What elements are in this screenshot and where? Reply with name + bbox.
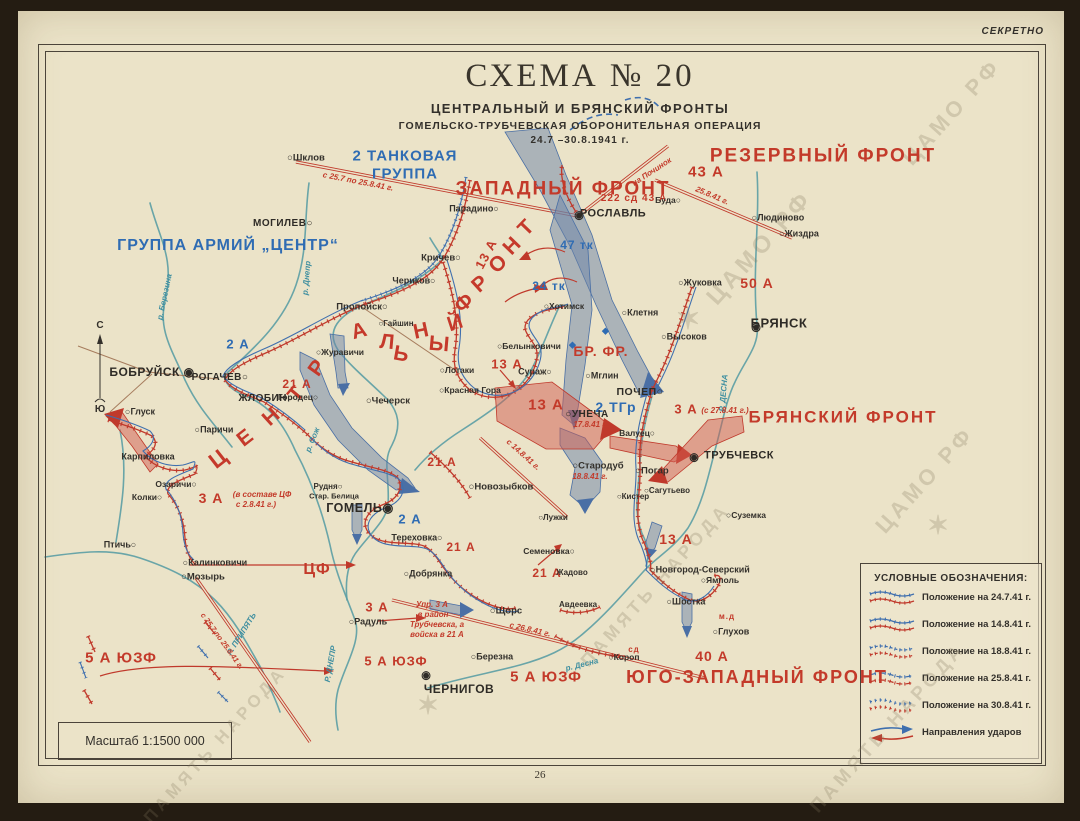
unit-label-red: 5 А ЮЗФ — [85, 651, 157, 666]
place-label: МОГИЛЕВ○ — [253, 219, 313, 229]
place-label: ○Лужки — [538, 514, 568, 522]
place-label: ○Глухов — [713, 628, 750, 637]
unit-label-red: 50 А — [740, 276, 774, 290]
legend-item: Положение на 24.7.41 г. — [861, 584, 1041, 611]
place-label: ○Чечерск — [366, 396, 410, 406]
place-label: РОСЛАВЛЬ — [580, 209, 646, 220]
map-title: СХЕМА № 20 — [330, 58, 830, 95]
city-marker-icon: ◉ — [689, 453, 699, 464]
place-label: ○Гайшин — [378, 320, 413, 328]
date-note: войска в 21 А — [410, 631, 464, 639]
place-label: ○Мозырь — [181, 572, 225, 582]
date-note: с 2.8.41 г.) — [236, 501, 276, 509]
place-label: ○Щорс — [490, 606, 522, 616]
date-note: Упр. 3 А — [416, 601, 448, 609]
place-label: Рудня○ — [314, 483, 343, 491]
compass-south-label: Ю — [95, 405, 105, 415]
date-note: (с 27.8.41 г.) — [701, 407, 748, 415]
position-line-icon — [868, 615, 916, 635]
watermark: ✶ — [675, 305, 704, 335]
date-note: 17.8.41 г. — [573, 421, 608, 429]
place-label: Озаричи○ — [155, 480, 196, 489]
place-label: ПОЧЕП○ — [617, 387, 664, 398]
place-label: Чериков○ — [392, 277, 435, 286]
place-label: ○Паричи — [195, 426, 234, 435]
unit-label-red: 43 А — [688, 165, 724, 180]
unit-label-red: м.д — [719, 613, 735, 621]
place-label: ○Шклов — [287, 153, 325, 163]
unit-label-blue: ◆ — [569, 341, 577, 350]
map-subtitle-operation: ГОМЕЛЬСКО-ТРУБЧЕВСКАЯ ОБОРОНИТЕЛЬНАЯ ОПЕ… — [330, 120, 830, 132]
front-label: БРЯНСКИЙ ФРОНТ — [749, 409, 938, 426]
position-line-icon — [868, 588, 916, 608]
unit-label-red: 21 А — [446, 541, 475, 553]
place-label: Тереховка○ — [391, 534, 442, 543]
place-label: ○Ямполь — [701, 576, 739, 585]
place-label: Стар. Белица — [309, 492, 359, 500]
place-label: Пропойск○ — [336, 302, 388, 312]
unit-label-blue: ◆ — [602, 327, 610, 336]
place-label: ○Березна — [471, 653, 513, 662]
unit-label-blue: 2 А — [226, 338, 249, 351]
unit-label-red: 5 А ЮЗФ — [364, 655, 427, 668]
unit-label-red: БР. ФР. — [573, 344, 628, 358]
unit-label-red: ЦФ — [303, 562, 330, 578]
city-marker-icon: ◉ — [421, 671, 431, 682]
place-label: РОГАЧЕВ○ — [192, 373, 249, 383]
watermark: ✶ — [927, 512, 953, 538]
legend-item-label: Положение на 24.7.41 г. — [922, 592, 1031, 603]
place-label: БРЯНСК — [751, 317, 808, 330]
unit-label-blue: 47 тк — [560, 239, 594, 251]
place-label: ЧЕРНИГОВ — [424, 683, 494, 695]
place-label: ГОМЕЛЬ◉ — [326, 502, 394, 515]
front-letter: Ы — [428, 333, 450, 356]
place-label: Парадино○ — [449, 205, 499, 214]
place-label: ○Сагутьево — [644, 487, 690, 495]
date-note: 18.8.41 г. — [572, 473, 607, 481]
place-label: ○Клетня — [622, 309, 659, 318]
place-label: ○Красная Гора — [439, 386, 501, 395]
place-label: ○Хотимск — [544, 302, 584, 311]
front-letter: Л — [379, 331, 396, 353]
scale-label: Масштаб 1:1500 000 — [85, 734, 205, 748]
place-label: ○Жуковка — [678, 279, 722, 288]
place-label: ○Калинковичи — [183, 559, 247, 568]
legend-item-label: Положение на 14.8.41 г. — [922, 619, 1031, 630]
place-label: Семеновка○ — [523, 547, 574, 556]
unit-label-blue: 24 тк — [532, 280, 566, 292]
place-label: ○Высоков — [661, 333, 707, 342]
place-label: ○УНЕЧА — [565, 410, 608, 420]
place-label: ○Радуль — [349, 618, 387, 627]
place-label: ○Шостка — [667, 598, 706, 607]
place-label: ○Лотаки — [440, 366, 474, 375]
unit-label-blue: 2 ТАНКОВАЯ — [353, 149, 458, 164]
place-label: ○Белынковичи — [497, 342, 561, 351]
place-label: ○Погар — [635, 466, 668, 476]
unit-label-blue: ГРУППА АРМИЙ „ЦЕНТР“ — [117, 238, 339, 254]
place-label: ○Новозыбков — [469, 482, 534, 492]
place-label: БОБРУЙСК ◉ — [109, 366, 194, 378]
legend-item: Положение на 14.8.41 г. — [861, 611, 1041, 638]
place-label: ○Людиново — [752, 214, 804, 223]
position-line-icon — [868, 642, 916, 662]
place-label: ТРУБЧЕВСК — [704, 451, 774, 462]
place-label: Колки○ — [132, 493, 162, 502]
place-label: ○Добрянка — [404, 570, 453, 579]
secret-stamp: СЕКРЕТНО — [982, 26, 1045, 37]
place-label: Кричев○ — [421, 253, 461, 263]
unit-label-red: 13 А — [528, 398, 564, 413]
legend-item-label: Направления ударов — [922, 727, 1021, 738]
compass-north-label: С — [96, 321, 103, 331]
front-label: РЕЗЕРВНЫЙ ФРОНТ — [710, 147, 936, 166]
map-dates: 24.7 –30.8.1941 г. — [330, 135, 830, 146]
place-label: Буда○ — [655, 196, 681, 205]
legend-title: УСЛОВНЫЕ ОБОЗНАЧЕНИЯ: — [861, 573, 1041, 584]
unit-label-blue: ГРУППА — [372, 167, 438, 182]
place-label: Валуец○ — [619, 429, 655, 438]
place-label: ○Мглин — [585, 372, 618, 381]
map-subtitle-fronts: ЦЕНТРАЛЬНЫЙ И БРЯНСКИЙ ФРОНТЫ — [330, 101, 830, 116]
unit-label-red: 3 А — [674, 403, 697, 416]
place-label: Карпиловка — [121, 453, 174, 462]
place-label: ○Суземка — [726, 511, 766, 520]
date-note: (в составе ЦФ — [233, 491, 291, 499]
unit-label-red: 21 А — [427, 456, 456, 468]
place-label: ○Стародуб — [572, 461, 623, 471]
place-label: ○Глуск — [125, 408, 155, 417]
unit-label-blue: 2 А — [398, 513, 421, 526]
place-label: Жадово — [556, 569, 587, 577]
date-note: в район — [418, 611, 449, 619]
place-label: Птичь○ — [104, 541, 137, 550]
front-label: ЮГО-ЗАПАДНЫЙ ФРОНТ — [626, 668, 888, 686]
unit-label-red: 40 А — [695, 649, 729, 663]
place-label: ○Короп — [608, 653, 639, 662]
page-number: 26 — [0, 769, 1080, 781]
date-note: Трубчевска, а — [410, 621, 464, 629]
place-label: ○Жиздра — [779, 230, 819, 239]
unit-label-red: 3 А — [365, 601, 388, 614]
place-label: Городец○ — [278, 393, 318, 402]
title-block: СХЕМА № 20 ЦЕНТРАЛЬНЫЙ И БРЯНСКИЙ ФРОНТЫ… — [330, 58, 830, 146]
unit-label-red: 13 А — [659, 532, 693, 546]
legend-item-label: Положение на 30.8.41 г. — [922, 700, 1031, 711]
map-sheet: СЕКРЕТНО СХЕМА № 20 ЦЕНТРАЛЬНЫЙ И БРЯНСК… — [0, 0, 1080, 821]
place-label: ○Журавичи — [316, 348, 364, 357]
place-label: Авдеевка — [559, 601, 597, 609]
unit-label-red: 3 А — [199, 491, 224, 505]
place-label: Сураж○ — [518, 368, 552, 377]
place-label: ○Новгород-Северский — [650, 566, 750, 575]
